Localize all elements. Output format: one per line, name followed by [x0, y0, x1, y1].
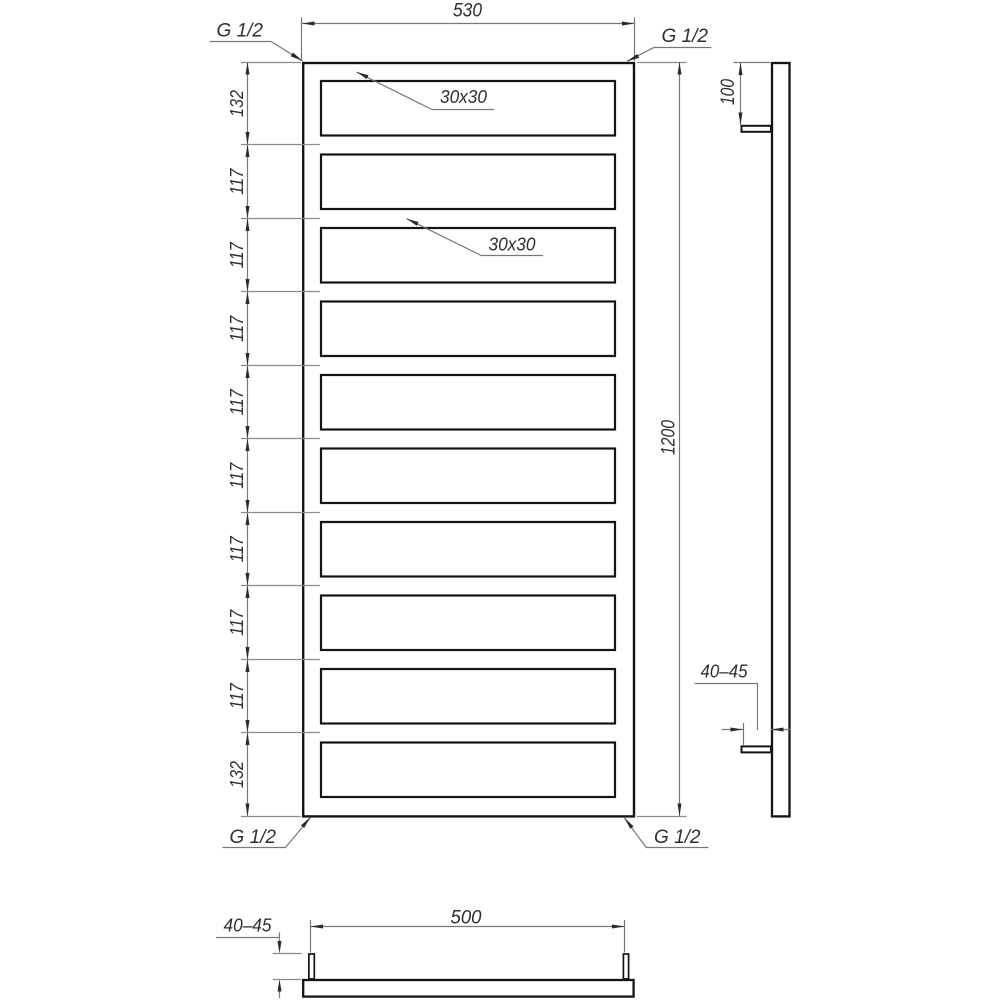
svg-text:117: 117 [226, 609, 247, 636]
svg-text:40–45: 40–45 [701, 660, 749, 681]
svg-text:30x30: 30x30 [489, 233, 537, 254]
svg-text:117: 117 [226, 462, 247, 489]
svg-text:30x30: 30x30 [440, 86, 488, 107]
svg-text:117: 117 [226, 315, 247, 342]
svg-text:117: 117 [226, 683, 247, 710]
svg-text:G 1/2: G 1/2 [230, 827, 277, 848]
svg-text:530: 530 [453, 1, 482, 22]
svg-text:132: 132 [226, 760, 247, 788]
svg-text:G 1/2: G 1/2 [654, 827, 701, 848]
svg-text:117: 117 [226, 242, 247, 269]
svg-text:117: 117 [226, 389, 247, 416]
svg-text:132: 132 [226, 89, 247, 117]
svg-text:1200: 1200 [658, 420, 680, 455]
svg-text:100: 100 [718, 79, 739, 105]
svg-text:G 1/2: G 1/2 [662, 26, 709, 47]
svg-text:G 1/2: G 1/2 [217, 20, 264, 41]
svg-text:117: 117 [226, 536, 247, 563]
svg-text:117: 117 [226, 168, 247, 195]
svg-text:500: 500 [451, 907, 482, 929]
svg-text:40–45: 40–45 [224, 915, 273, 936]
